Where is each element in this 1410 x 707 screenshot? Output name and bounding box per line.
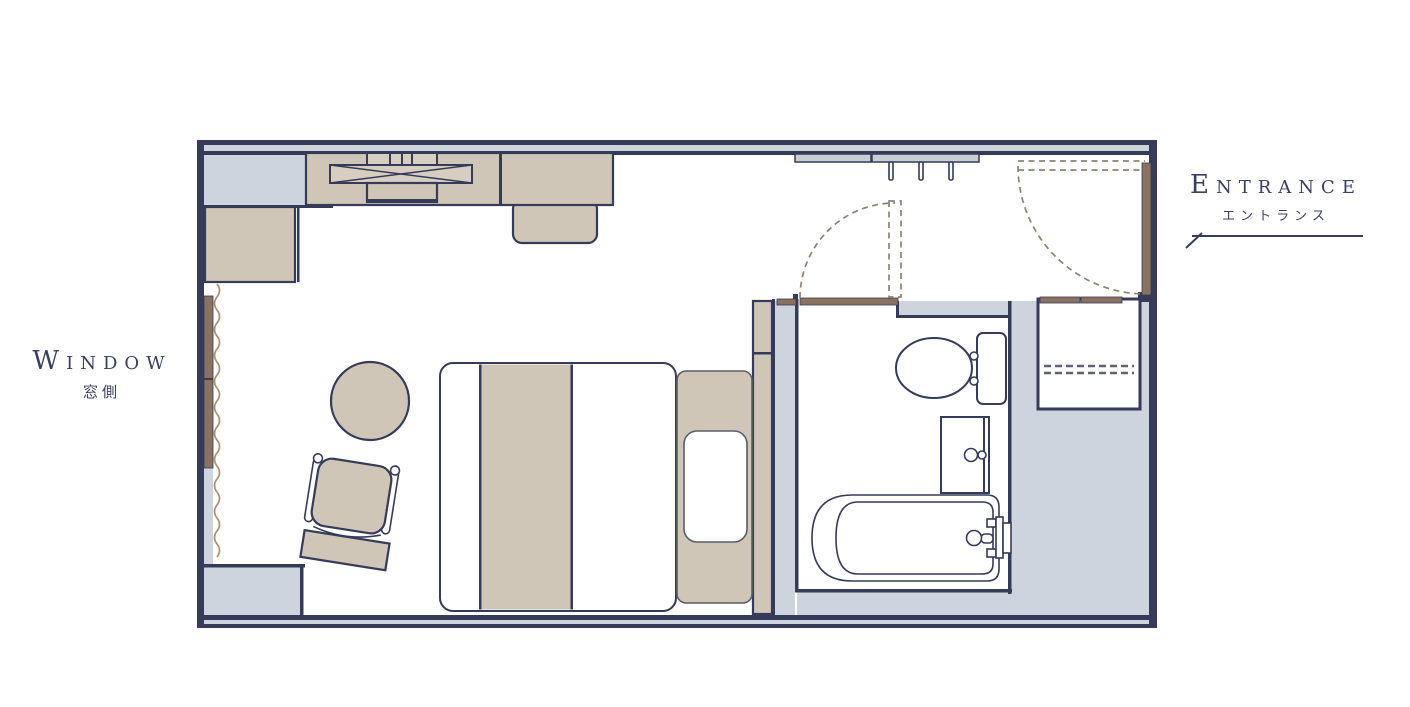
hanger-hook-icon: [949, 162, 953, 180]
curtain-icon: [215, 284, 220, 557]
double-bed: [440, 301, 772, 614]
window-title: Window: [18, 348, 186, 374]
closet-threshold: [1081, 297, 1122, 303]
door-sill: [800, 298, 898, 305]
faucet-knob: [978, 451, 986, 459]
bedside-ledge: [753, 301, 772, 614]
coat-hanger-rail: [795, 154, 979, 180]
toilet: [896, 333, 1006, 404]
window-frame-joint: [204, 378, 213, 380]
cabinet-body: [205, 207, 295, 282]
entrance-leader-line: [1186, 233, 1363, 248]
hanger-hook-icon: [889, 162, 893, 180]
cabinet-side-line: [297, 207, 300, 282]
floor-plan: [0, 0, 1410, 707]
counter-divider: [499, 153, 502, 205]
hanger-hook-icon: [919, 162, 923, 180]
chair-seat: [310, 457, 394, 536]
wall-bottom-outer: [197, 624, 1157, 628]
bathtub: [812, 495, 1011, 581]
window-label: Window 窓側: [18, 348, 186, 402]
round-table: [331, 362, 409, 440]
notch-right-edge: [300, 564, 304, 618]
below-bathroom-wall: [797, 592, 1010, 615]
bedside-ledge-joint: [753, 352, 772, 355]
counter-compartments: [367, 153, 437, 165]
bathroom-left-wall: [795, 299, 799, 592]
counter-stool: [367, 183, 437, 203]
door-leaf-open: [889, 201, 901, 297]
threshold: [777, 299, 796, 305]
closet-box: [1038, 299, 1140, 409]
wall-top-outer: [197, 140, 1157, 145]
door-swing-arc: [1018, 166, 1146, 294]
lounge-chair: [298, 453, 402, 570]
entrance-label: Entrance エントランス: [1178, 172, 1374, 224]
bathroom-chunk-bottom-edge: [896, 315, 1011, 318]
drain: [967, 531, 982, 546]
corner-wall-notch: [202, 567, 302, 615]
faucet-icon: [965, 449, 978, 462]
window-frame: [204, 296, 213, 468]
overflow: [981, 534, 993, 543]
wall-bottom-inner: [197, 615, 1157, 620]
toilet-bowl: [896, 338, 972, 398]
toilet-hinge: [970, 377, 978, 385]
counter-desk: [306, 153, 613, 243]
entrance-door: [1018, 161, 1151, 295]
notch-top-edge: [202, 564, 305, 568]
rail-segment: [795, 154, 871, 162]
pillow: [684, 431, 747, 542]
door-leaf: [1142, 163, 1151, 295]
door-swing-arc: [800, 203, 895, 298]
left-wall-lower-band: [204, 468, 213, 567]
closet: [1038, 297, 1140, 409]
desk-chair: [513, 200, 597, 243]
bathroom-bottom-wall: [795, 589, 1012, 593]
entrance-subtitle: エントランス: [1178, 205, 1374, 224]
entrance-title: Entrance: [1178, 172, 1374, 198]
top-wall-core: [202, 145, 1151, 151]
toilet-hinge: [970, 352, 978, 360]
bed-runner: [479, 365, 573, 610]
wall-left: [197, 140, 204, 628]
floor-plan-page: Window 窓側 Entrance エントランス: [0, 0, 1410, 707]
bottom-wall-core: [204, 620, 1149, 624]
bathroom-door: [777, 201, 901, 305]
bedroom-bathroom-divider: [775, 301, 795, 617]
window-subtitle: 窓側: [18, 381, 186, 402]
rail-segment: [872, 154, 979, 162]
wall-cabinet: [205, 207, 300, 282]
luggage-rack-icon: [330, 165, 472, 183]
closet-threshold: [1040, 297, 1080, 303]
washbasin: [941, 417, 989, 493]
toilet-tank: [977, 333, 1006, 404]
